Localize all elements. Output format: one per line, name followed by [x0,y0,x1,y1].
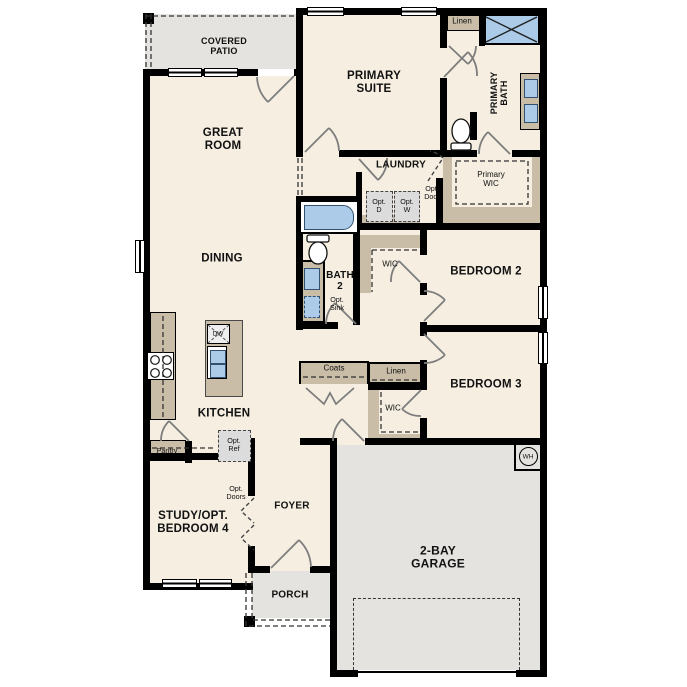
wall [470,112,477,140]
patio-post [143,13,154,24]
optional-sink-basin [304,296,320,318]
opt-dryer-label: Opt. D [372,198,386,214]
linen-bath-label: Linen [452,18,472,27]
window [204,68,238,77]
bedroom2-label: BEDROOM 2 [450,266,521,279]
wall [420,230,427,255]
window [307,7,344,16]
floor-plan: COVERED PATIO GREAT ROOM DINING KITCHEN … [0,0,687,687]
covered-patio-label: COVERED PATIO [201,36,247,56]
sink-basin [210,364,226,378]
wall [420,325,547,332]
stove [147,352,174,380]
garage-door-line [356,671,516,673]
wall [296,322,338,329]
window [162,579,197,588]
porch-label: PORCH [271,589,308,600]
wall [310,566,337,573]
dining-label: DINING [201,253,242,266]
study-label: STUDY/OPT. BEDROOM 4 [157,510,228,536]
wall [143,583,253,590]
wall [420,418,427,445]
wall [420,283,427,295]
wall [339,150,477,157]
garage-label: 2-BAY GARAGE [411,545,465,572]
window [538,332,548,364]
great-room-label: GREAT ROOM [203,127,243,153]
opt-door-label: Opt. Door [424,185,440,201]
dishwasher-label: DW [213,330,224,337]
foyer-label: FOYER [274,500,309,511]
opt-ref-label: Opt. Ref [227,437,241,453]
window [538,286,548,319]
sink-basin [210,350,226,364]
porch-post [244,616,255,627]
wall [440,15,447,48]
wall [248,566,270,573]
kitchen-label: KITCHEN [198,408,251,421]
opt-doors-label: Opt. Doors [226,485,245,501]
wall [300,438,337,445]
wall [358,223,540,230]
water-heater-label: WH [523,453,534,460]
wic2-wall-left [359,248,371,293]
shower [484,14,540,45]
wall [143,69,150,590]
bath2-label: BATH 2 [326,270,354,292]
sink-basin [524,79,538,98]
primary-wic-label: Primary WIC [477,171,505,189]
bathtub [304,205,354,230]
laundry-label: LAUNDRY [376,159,426,170]
wall [353,225,360,325]
coats-label: Coats [324,365,345,374]
garage-door-swing [353,598,520,670]
sink-basin [304,268,320,290]
wic2-label: WIC [382,261,398,270]
wall [368,384,423,390]
linen-hall-label: Linen [386,368,406,377]
window [401,7,437,16]
primary-suite-label: PRIMARY SUITE [347,70,401,96]
wall [420,325,427,336]
pantry-label: Pantry [157,447,178,455]
wall [296,8,303,157]
opt-washer-label: Opt. W [400,198,414,214]
wall [440,78,447,155]
wall [516,670,547,677]
bedroom3-label: BEDROOM 3 [450,379,521,392]
window [168,68,202,77]
window [199,579,232,588]
wic3-label: WIC [385,405,401,414]
wall [512,150,540,157]
opt-sink-label: Opt. Sink [330,296,344,312]
primary-bath-label: PRIMARY BATH [489,72,509,115]
wall [330,443,337,677]
window [135,240,145,273]
wic2-wall-top [359,235,420,248]
sink-basin [524,104,538,123]
